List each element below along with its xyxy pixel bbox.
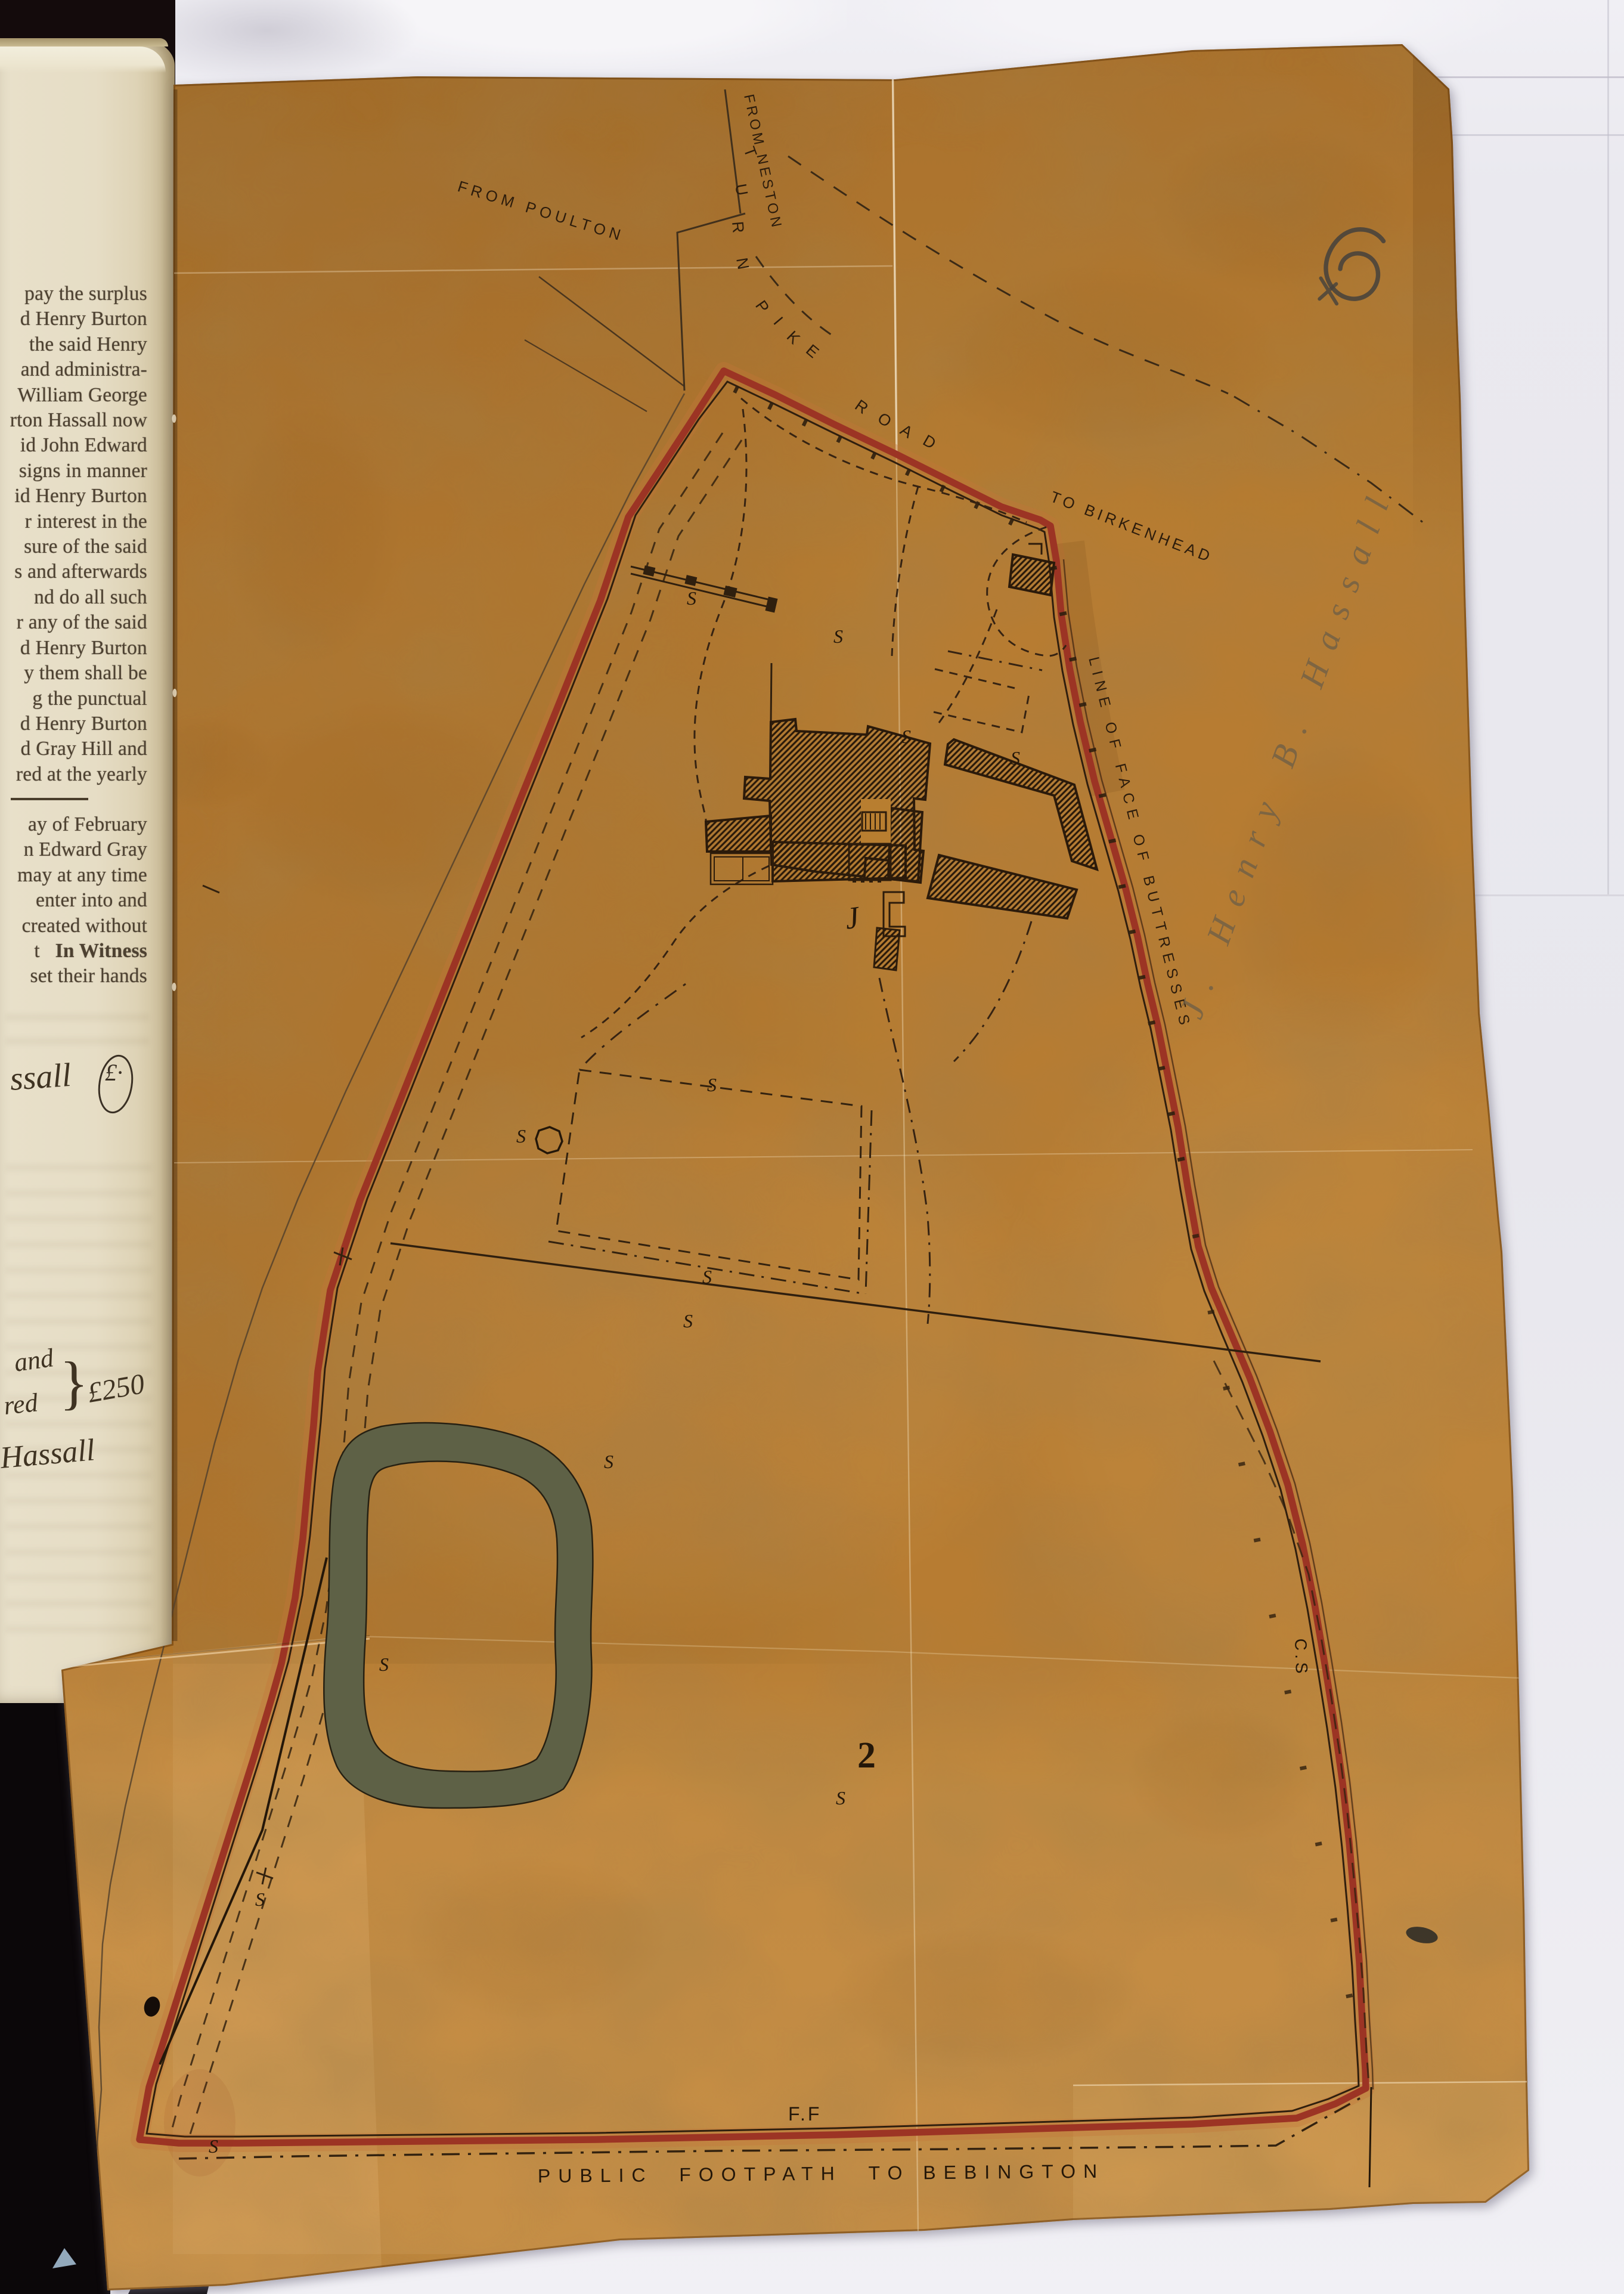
svg-text:S: S — [379, 1654, 389, 1675]
svg-text:S: S — [687, 587, 696, 609]
svg-text:S: S — [702, 1266, 712, 1287]
svg-text:S: S — [255, 1889, 265, 1910]
svg-text:C.S: C.S — [1291, 1638, 1311, 1677]
svg-text:S: S — [901, 726, 911, 747]
svg-text:F.F: F.F — [788, 2103, 822, 2125]
svg-text:2: 2 — [857, 1735, 876, 1776]
svg-text:S: S — [707, 1074, 717, 1095]
svg-text:S: S — [1011, 747, 1020, 769]
svg-text:S: S — [516, 1125, 526, 1147]
svg-text:S: S — [833, 626, 843, 647]
svg-text:S: S — [604, 1451, 613, 1472]
svg-text:R: R — [729, 221, 748, 234]
svg-text:S: S — [683, 1310, 693, 1332]
svg-text:S: S — [836, 1787, 845, 1809]
svg-text:S: S — [209, 2135, 218, 2157]
